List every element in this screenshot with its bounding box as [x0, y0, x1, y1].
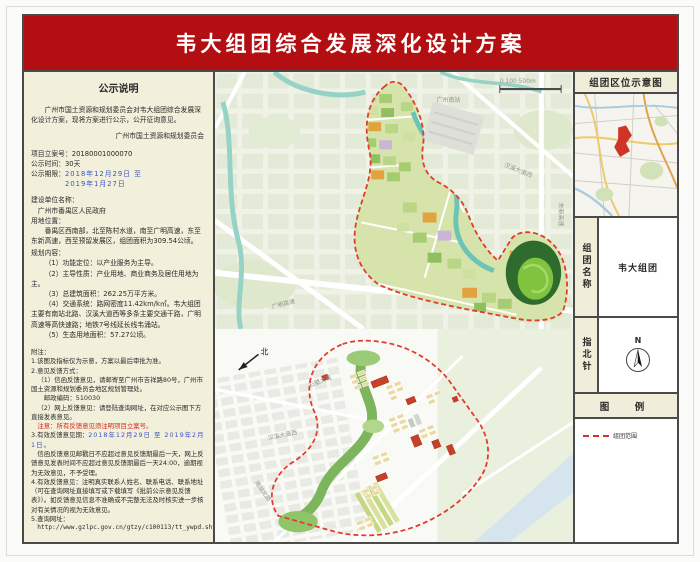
notice-poster-page: 韦大组团综合发展深化设计方案 公示说明 广州市国土资源和规划委员会对韦大组团综合… [0, 0, 700, 562]
footnote-1: 1.该图及指标仅为示意，方案以最后审批为准。 [31, 357, 206, 366]
station-label: 广州南站 [437, 96, 461, 104]
period-from: 2018年12月29日 至 [65, 170, 142, 178]
compass-section: 指北针 N [575, 318, 677, 394]
site-label: 用地位置： [31, 216, 206, 226]
footnote-3-label: 3.有效反馈意见期： [31, 431, 88, 439]
compass-icon [624, 346, 652, 374]
poster-title: 韦大组团综合发展深化设计方案 [176, 28, 526, 58]
period-label: 公示期限： [31, 170, 65, 178]
footnotes-label: 附注： [31, 348, 206, 357]
side-panel: 组团区位示意图 [573, 72, 677, 542]
footnote-2-2: （2）网上反馈意见：请登陆查询网址，在对应公示图下方直接发表意见。 [31, 404, 206, 423]
compass-north-letter: N [635, 336, 642, 345]
poster-content: 公示说明 广州市国土资源和规划委员会对韦大组团综合发展深化设计方案，现将方案进行… [24, 72, 677, 542]
location-map [575, 94, 677, 218]
group-name-label: 组团名称 [575, 218, 599, 316]
landuse-plan-map: 0 100 500m 广州南站 东新高速 广明高速 汉溪大道西 [215, 72, 573, 329]
footnote-zip: 邮政编码：510030 [31, 394, 206, 403]
notice-panel: 公示说明 广州市国土资源和规划委员会对韦大组团综合发展深化设计方案，现将方案进行… [24, 72, 215, 542]
notice-intro: 广州市国土资源和规划委员会对韦大组团综合发展深化设计方案，现将方案进行公示，公开… [31, 105, 206, 125]
boundary-dash-sample-icon [583, 435, 609, 437]
legend-item-label: 组团范围 [613, 431, 637, 440]
footnote-3-text: 信函反馈意见邮戳日不应超过意见反馈期最后一天，网上反馈意见发表时间不应超过意见反… [31, 450, 206, 478]
group-name-value: 韦大组团 [599, 218, 677, 316]
map-panel: 0 100 500m 广州南站 东新高速 广明高速 汉溪大道西 [215, 72, 573, 542]
plan-item: （3）总建筑面积：262.25万平方米。 [31, 289, 206, 299]
scale-label: 0 100 500m [500, 78, 536, 85]
legend-item-boundary: 组团范围 [583, 431, 669, 440]
plan-item: （4）交通系统：路网密度11.42km/k㎡。韦大组团主要有南站北路、汉溪大道西… [31, 299, 206, 330]
plan-item: （5）生态用地面积：57.27公顷。 [31, 330, 206, 340]
notice-heading: 公示说明 [31, 82, 206, 97]
north-label: 北 [260, 347, 268, 356]
compass: N [599, 318, 677, 392]
site-value: 番禺区西南部，北至陈村水道，南至广明高速，东至东新高速，西至预留发展区，组团面积… [31, 226, 206, 246]
footnote-2: 2.意见反馈方式： [31, 367, 206, 376]
poster-frame: 韦大组团综合发展深化设计方案 公示说明 广州市国土资源和规划委员会对韦大组团综合… [22, 14, 679, 544]
footnote-2-1: （1）信函反馈意见，请邮寄至广州市吉祥路80号，广州市国土资源和规划委员会地区规… [31, 376, 206, 395]
location-map-title: 组团区位示意图 [575, 72, 677, 94]
query-url: http://www.gzlpc.gov.cn/gtzy/c100113/tt_… [31, 524, 206, 533]
legend-body: 组团范围 [575, 419, 677, 542]
period-to: 2019年1月27日 [31, 179, 206, 189]
plan-label: 规划内容： [31, 248, 206, 258]
builder-label: 建设单位名称： [31, 195, 206, 205]
notice-duration: 公示时间：30天 [31, 159, 206, 169]
notice-agency: 广州市国土资源和规划委员会 [31, 131, 204, 141]
builder-value: 广州市番禺区人民政府 [31, 206, 206, 216]
plan-item: （1）功能定位：以产业服务为主导。 [31, 258, 206, 268]
compass-label: 指北针 [575, 318, 599, 392]
plan-item: （2）主导性质：产业用地、商业商务及居住用地为主。 [31, 269, 206, 289]
urban-design-render-map: 北 汉溪大道西 南站北路 石壁大道 [215, 329, 573, 542]
legend-title: 图 例 [575, 394, 677, 419]
case-number: 项目立案号：20180001000070 [31, 149, 206, 159]
footnote-4: 4.有效反馈意见：注明真实联系人姓名、联系电话、联系地址（可在查询网址直接填写或… [31, 478, 206, 515]
footnotes: 附注： 1.该图及指标仅为示意，方案以最后审批为准。 2.意见反馈方式： （1）… [31, 348, 206, 533]
group-name-section: 组团名称 韦大组团 [575, 218, 677, 318]
title-banner: 韦大组团综合发展深化设计方案 [24, 16, 677, 72]
footnote-5-label: 5.查询网址： [31, 515, 206, 524]
footnote-3: 3.有效反馈意见期：2018年12月29日 至 2019年2月1日。 [31, 431, 206, 450]
road-label-east: 东新高速 [557, 202, 565, 226]
notice-period: 公示期限：2018年12月29日 至 [31, 169, 206, 179]
